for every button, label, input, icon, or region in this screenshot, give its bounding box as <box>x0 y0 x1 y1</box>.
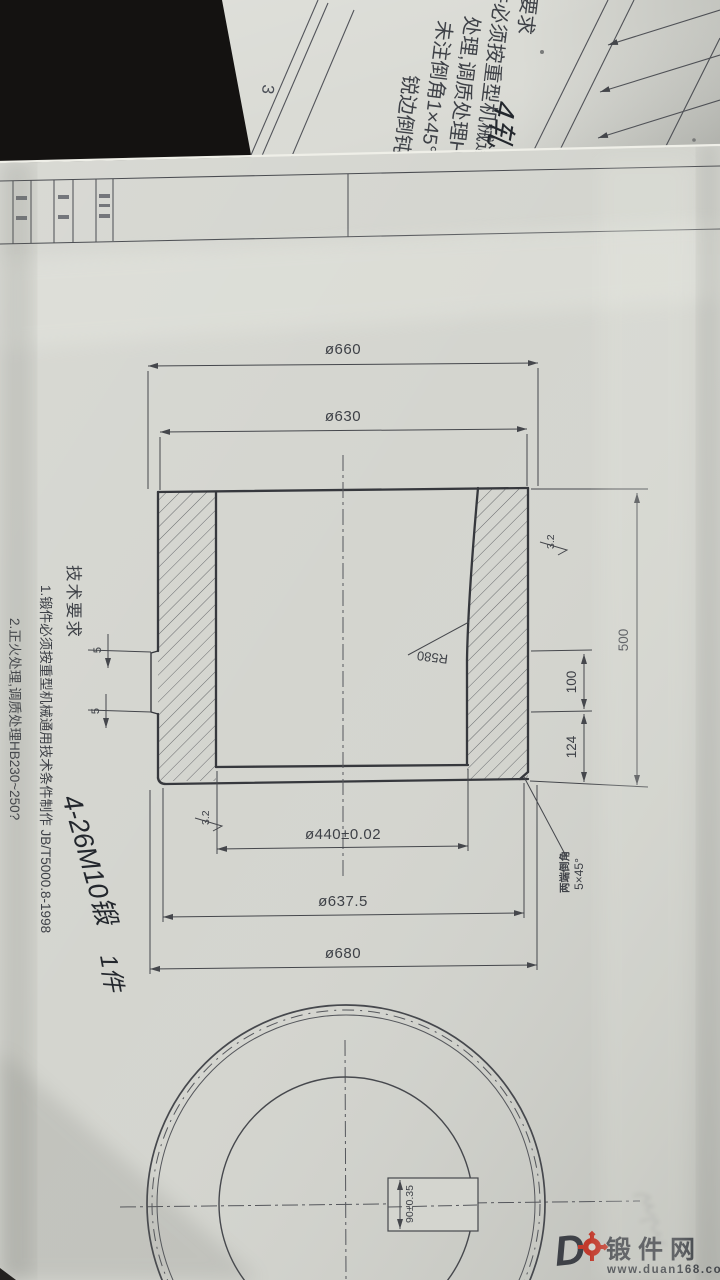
dim-height-124: 124 <box>564 735 579 758</box>
left-wall-hatch <box>158 492 216 781</box>
photo-of-engineering-drawing: { "photo": { "background": "#161413", "m… <box>0 0 720 1280</box>
watermark-logo-letter: D <box>552 1225 587 1275</box>
tech-req-title: 技术要求 <box>64 565 83 639</box>
dim-chamfer-5x45: 5×45° <box>572 858 586 890</box>
dim-height-100: 100 <box>564 671 579 694</box>
right-wall-hatch <box>467 488 528 779</box>
dim-diameter-637-5: ø637.5 <box>318 893 368 910</box>
chamfer-note-both-ends: 两端倒角 <box>558 851 571 893</box>
roughness-value: 3.2 <box>545 534 557 549</box>
dim-keyway-90: 90±0.35 <box>404 1185 416 1223</box>
under-sheet-shadow <box>520 0 720 160</box>
table-background-corner <box>0 0 252 164</box>
keyway-detail: 90±0.35 <box>388 1178 478 1231</box>
dim-outer-diameter-680: ø680 <box>325 945 361 962</box>
dim-step-5a: 5 <box>92 647 104 653</box>
dim-step-5b: 5 <box>90 708 102 714</box>
drawing-photo-canvas: 3 要求 件必须按重型机械通用 处理,调质处理HB230 未注倒角1×45°,未… <box>0 0 720 1280</box>
dim-outer-diameter-660: ø660 <box>325 341 361 358</box>
tech-req-line1: 1.锻件必须按重型机械通用技术条件制作 JB/T5000.8-1998 <box>38 585 54 933</box>
roughness-value: 3.2 <box>200 810 212 825</box>
dim-height-500: 500 <box>616 629 631 652</box>
watermark-site-url: www.duan168.com <box>606 1264 720 1276</box>
dim-diameter-630: ø630 <box>325 408 361 425</box>
dim-bore-diameter-440: ø440±0.02 <box>305 826 381 843</box>
watermark-site-name: 锻件网 <box>606 1235 702 1264</box>
main-sheet: ø660 ø630 ø440±0.02 ø637.5 ø680 500 100 … <box>0 140 720 1280</box>
tech-req-line2: 2.正火处理,调质处理HB230~250? <box>7 618 22 820</box>
